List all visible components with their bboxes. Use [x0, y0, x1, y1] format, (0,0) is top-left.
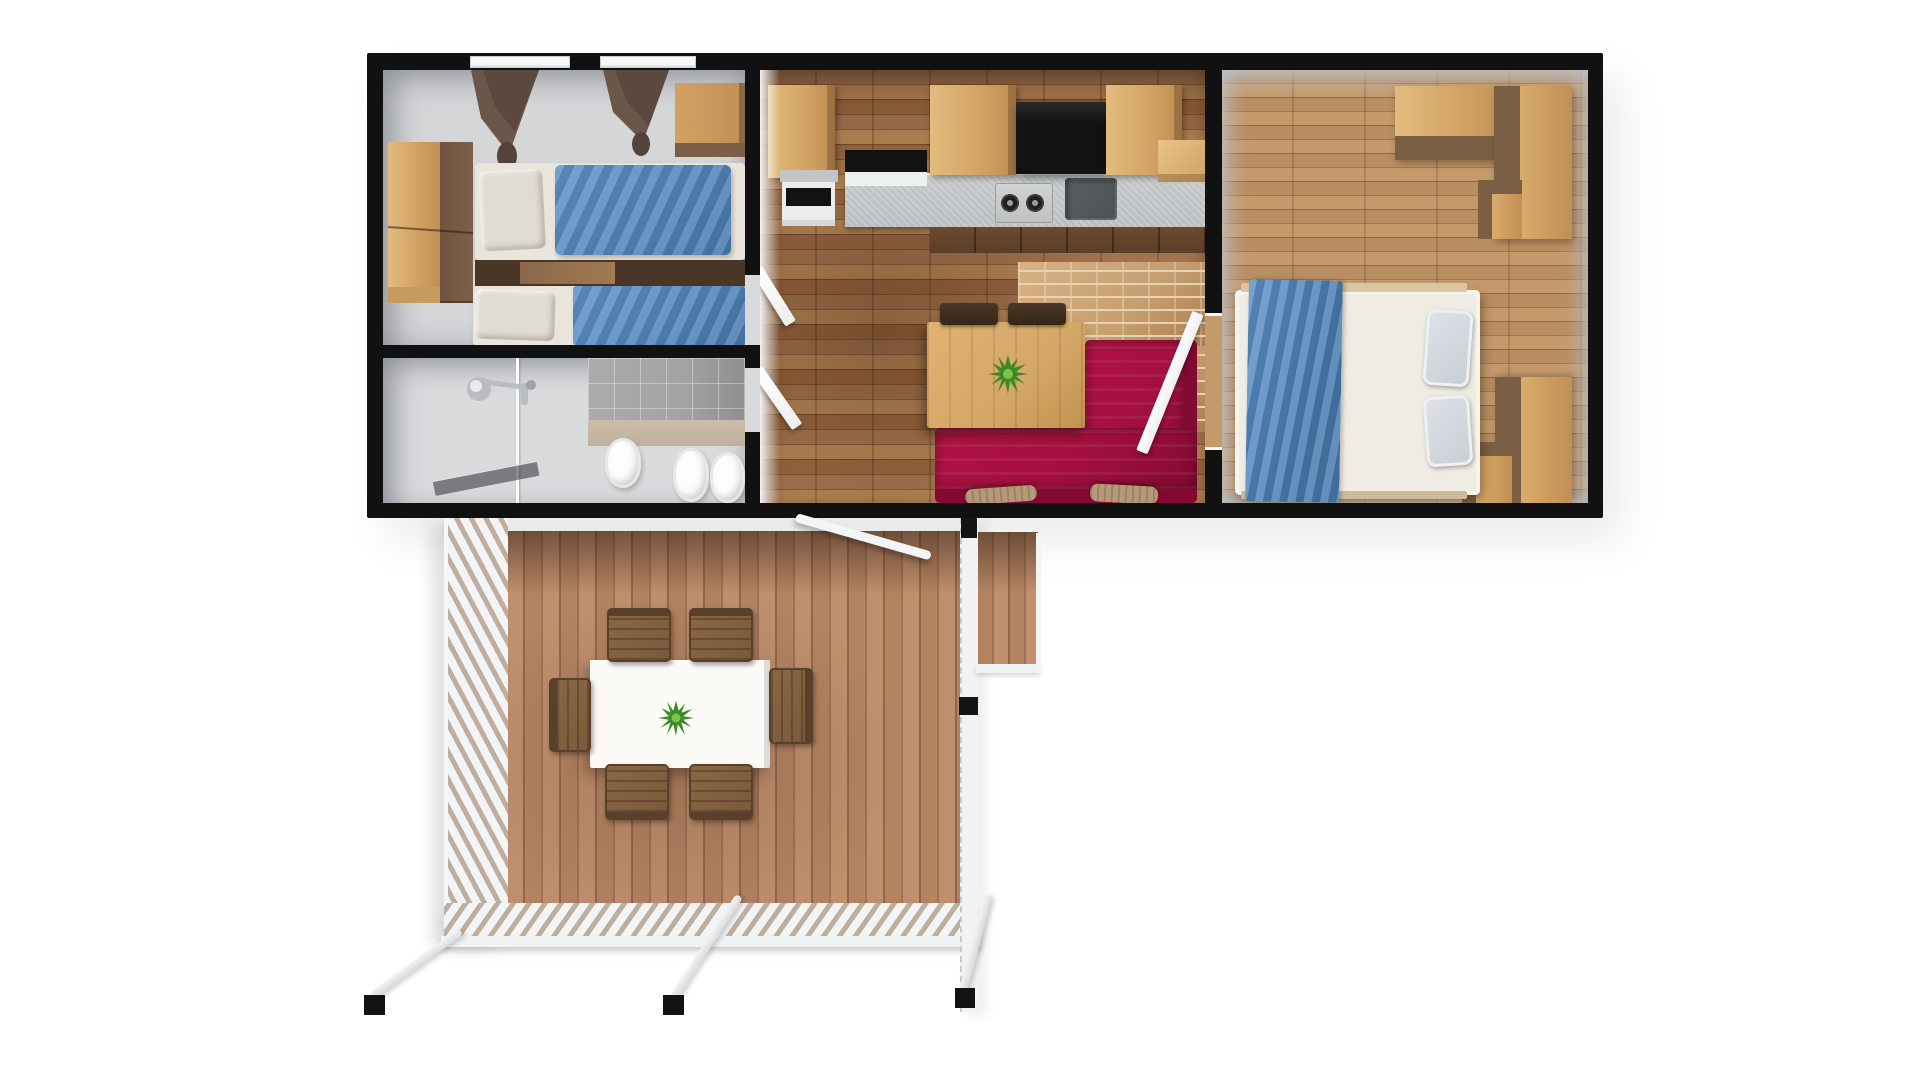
kitchen-living-room: [760, 70, 1205, 503]
landing-edge: [976, 664, 1040, 673]
wardrobe: [388, 142, 473, 303]
toilet: [673, 448, 709, 502]
blue-duvet: [555, 165, 731, 255]
bidet: [710, 452, 745, 503]
gas-cooktop: [995, 183, 1053, 223]
doorway-bathroom: [745, 368, 760, 432]
range-hood: [1016, 102, 1106, 174]
post-foot: [663, 995, 684, 1015]
potted-plant: [988, 354, 1028, 394]
pillow: [1423, 394, 1474, 467]
landing-shadow: [978, 532, 1038, 667]
appliance-white-front: [845, 172, 927, 186]
burner: [1025, 193, 1045, 213]
deck-chair-north: [689, 608, 753, 662]
appliance-black-front: [845, 150, 927, 172]
twin-bed-upper: [475, 163, 745, 260]
post-foot: [955, 988, 975, 1008]
double-bed: [1235, 290, 1480, 495]
bedroom1-window-left: [470, 56, 570, 68]
blue-duvet: [573, 286, 745, 345]
deck-chair-north: [607, 608, 671, 662]
pillow: [474, 289, 556, 342]
shower-screen: [432, 460, 539, 496]
corner-cabinet: [1158, 140, 1205, 182]
entry-landing: [978, 532, 1038, 667]
wall-cabinet-left: [930, 85, 1016, 175]
kitchen-sink: [1065, 178, 1117, 220]
lattice-railing-left: [444, 518, 508, 940]
pillow: [1422, 308, 1473, 387]
nightstand: [520, 262, 615, 284]
deck-chair-east: [769, 668, 813, 744]
sofa-pillow: [1090, 483, 1159, 503]
doorway-bedroom1: [745, 275, 760, 345]
master-bedroom: [1222, 70, 1588, 503]
wardrobe-top-face: [388, 142, 440, 303]
railing-post: [961, 518, 977, 538]
blue-throw-blanket: [1245, 279, 1343, 503]
outdoor-potted-plant: [658, 700, 694, 736]
post-foot: [364, 995, 385, 1015]
support-post: [370, 928, 464, 999]
dining-chair: [1008, 303, 1066, 325]
wardrobe-front-face: [440, 142, 473, 303]
floor-plan-render: [0, 0, 1920, 1080]
deck-edge-board: [445, 518, 961, 532]
bedroom1-window-right: [600, 56, 696, 68]
railing-post: [959, 697, 978, 715]
washbasin: [605, 438, 641, 488]
burner: [1000, 193, 1020, 213]
overhead-cabinet: [675, 83, 745, 157]
lower-cabinets: [930, 227, 1205, 253]
dining-chair: [940, 303, 998, 325]
built-in-oven: [782, 182, 835, 226]
deck-chair-south: [605, 764, 669, 820]
deck-chair-south: [689, 764, 753, 820]
landing-edge-right: [1036, 533, 1041, 673]
twin-bed-lower: [473, 286, 745, 345]
doorway-bedroom2: [1205, 313, 1222, 450]
twin-bedroom: [383, 70, 745, 345]
deck-chair-west: [549, 678, 591, 752]
wardrobe-top-step: [1478, 180, 1522, 239]
mobile-home-unit: [367, 53, 1603, 518]
bathroom: [383, 358, 745, 503]
bed-frame-band: [475, 260, 745, 286]
pillow: [478, 168, 546, 251]
oven-glass: [786, 188, 831, 206]
shower-head: [453, 363, 549, 419]
appliance-counter: [780, 170, 838, 182]
